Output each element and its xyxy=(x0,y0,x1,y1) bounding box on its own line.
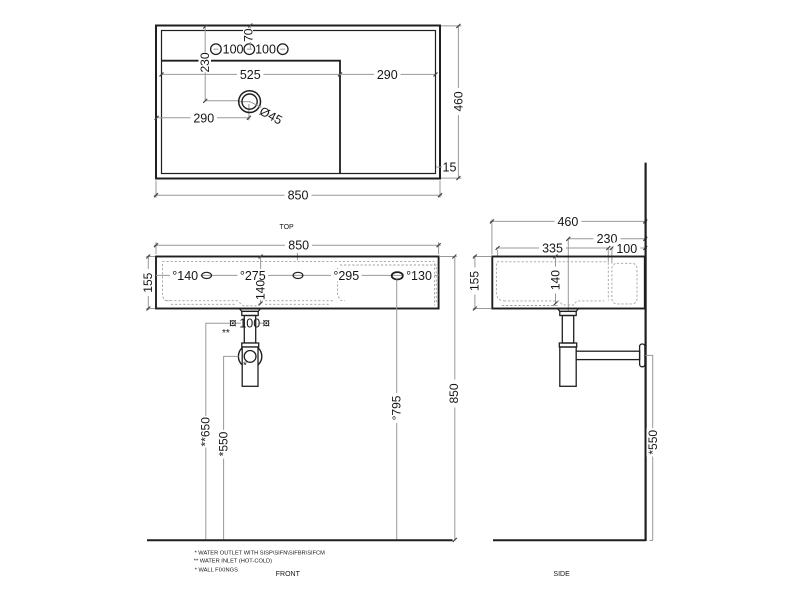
svg-text:*550: *550 xyxy=(216,431,230,456)
svg-text:100: 100 xyxy=(255,43,276,57)
svg-text:525: 525 xyxy=(240,68,261,82)
svg-text:460: 460 xyxy=(452,91,466,111)
svg-text:**650: **650 xyxy=(199,417,213,447)
svg-text:*550: *550 xyxy=(646,430,660,455)
svg-text:°295: °295 xyxy=(333,269,359,283)
svg-text:15: 15 xyxy=(443,161,457,175)
svg-text:850: 850 xyxy=(288,189,309,203)
svg-text:155: 155 xyxy=(141,272,155,292)
svg-text:°130: °130 xyxy=(406,269,432,283)
svg-text:70: 70 xyxy=(241,28,255,42)
svg-text:850: 850 xyxy=(288,239,309,253)
svg-text:* WALL FIXINGS: * WALL FIXINGS xyxy=(195,567,238,573)
svg-text:155: 155 xyxy=(468,271,482,291)
svg-text:335: 335 xyxy=(542,242,563,256)
svg-text:100: 100 xyxy=(223,43,244,57)
svg-text:**: ** xyxy=(222,328,230,339)
svg-text:290: 290 xyxy=(377,68,398,82)
svg-text:290: 290 xyxy=(193,111,214,125)
svg-text:460: 460 xyxy=(557,215,578,229)
svg-text:SIDE: SIDE xyxy=(553,571,570,578)
svg-text:100: 100 xyxy=(239,317,260,331)
svg-text:FRONT: FRONT xyxy=(276,571,301,578)
svg-text:** WATER INLET (HOT-COLD): ** WATER INLET (HOT-COLD) xyxy=(194,558,272,564)
svg-text:230: 230 xyxy=(198,52,212,72)
svg-text:140: 140 xyxy=(548,270,562,290)
svg-text:°795: °795 xyxy=(389,395,403,420)
svg-text:TOP: TOP xyxy=(279,224,294,231)
svg-text:* WATER OUTLET WITH SISP\SIFN: * WATER OUTLET WITH SISP\SIFN\SIFBR\SIFC… xyxy=(195,551,326,557)
svg-text:140: 140 xyxy=(254,280,268,300)
svg-text:850: 850 xyxy=(447,383,461,403)
svg-text:°140: °140 xyxy=(172,269,198,283)
svg-text:100: 100 xyxy=(616,242,637,256)
svg-text:*: * xyxy=(243,361,247,372)
